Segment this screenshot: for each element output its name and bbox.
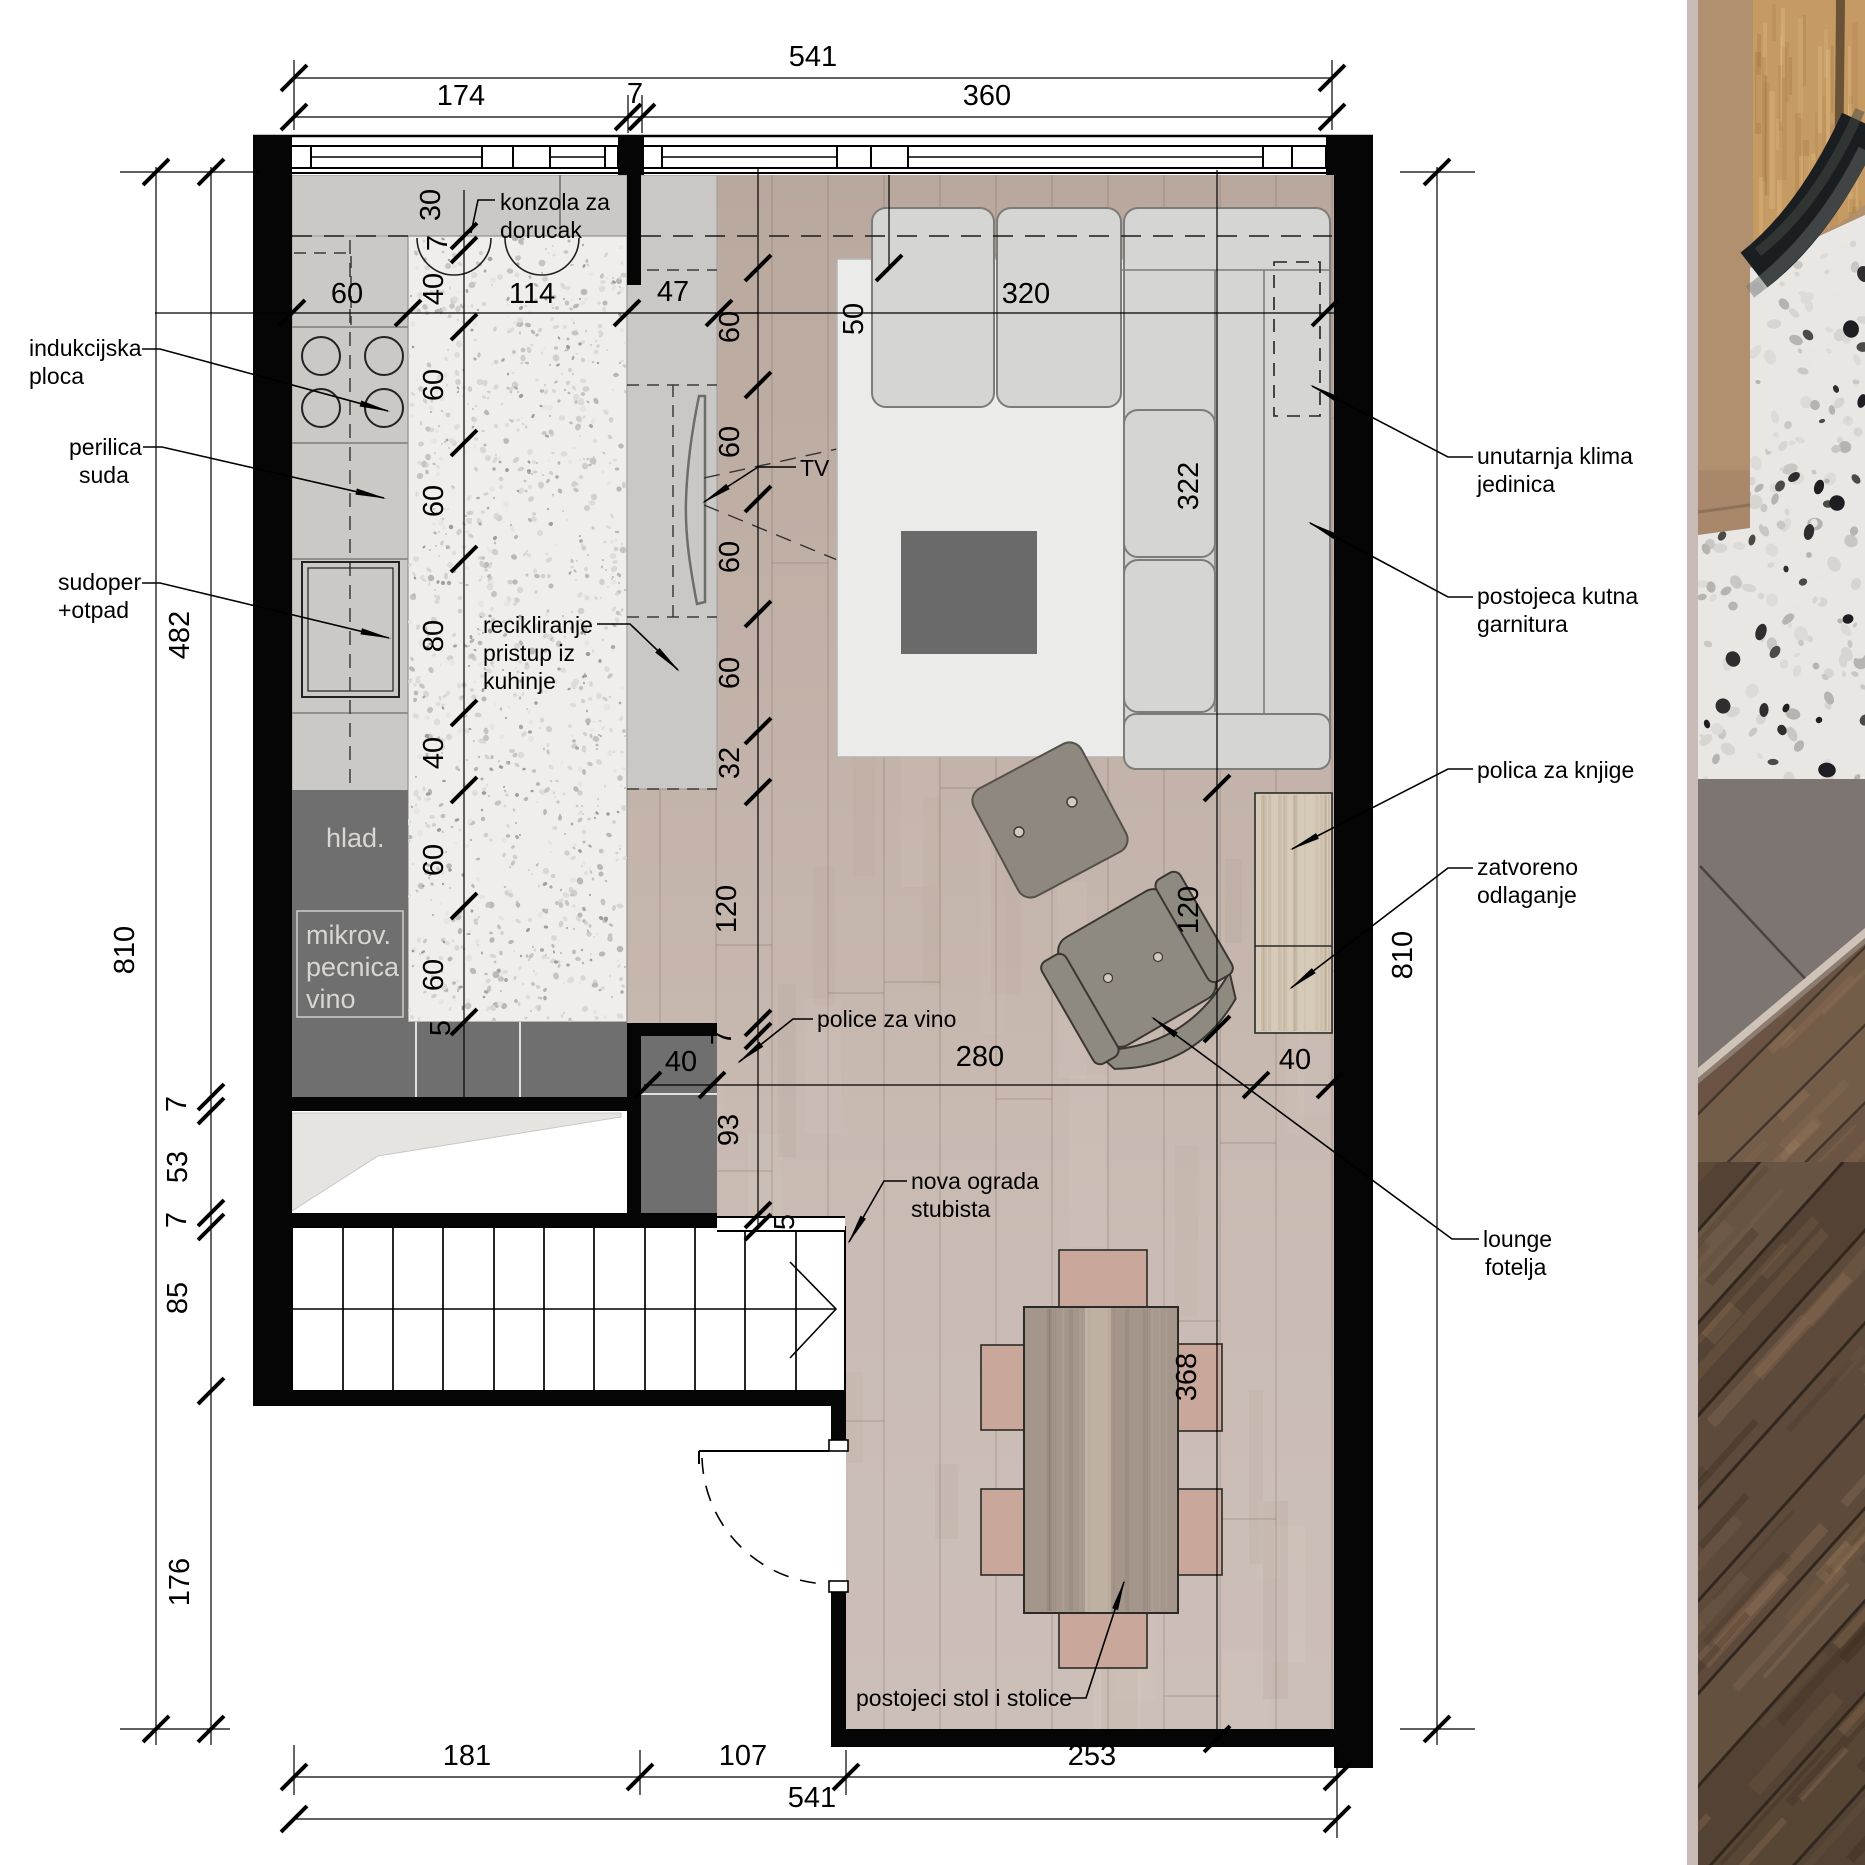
svg-text:810: 810 (109, 926, 141, 974)
svg-text:ploca: ploca (29, 363, 84, 389)
svg-text:810: 810 (1387, 931, 1419, 979)
svg-text:181: 181 (443, 1740, 491, 1772)
svg-text:zatvoreno: zatvoreno (1477, 854, 1578, 880)
svg-text:176: 176 (164, 1558, 196, 1606)
svg-text:30: 30 (415, 189, 447, 221)
svg-text:47: 47 (657, 276, 689, 308)
svg-text:jedinica: jedinica (1476, 471, 1555, 497)
svg-text:114: 114 (509, 278, 555, 310)
svg-text:50: 50 (838, 303, 870, 335)
svg-text:7: 7 (627, 78, 643, 110)
svg-text:32: 32 (714, 747, 746, 779)
svg-text:postojeca kutna: postojeca kutna (1477, 583, 1638, 609)
svg-text:7: 7 (706, 1029, 738, 1045)
svg-text:40: 40 (1279, 1044, 1311, 1076)
svg-text:7: 7 (161, 1096, 193, 1112)
svg-text:60: 60 (714, 657, 746, 689)
svg-text:93: 93 (713, 1114, 745, 1146)
svg-text:nova ograda: nova ograda (911, 1168, 1039, 1194)
svg-text:hlad.: hlad. (326, 823, 385, 853)
svg-text:stubista: stubista (911, 1196, 990, 1222)
svg-text:60: 60 (331, 278, 363, 310)
svg-text:482: 482 (164, 611, 196, 659)
svg-text:120: 120 (1173, 886, 1205, 934)
svg-text:TV: TV (800, 455, 830, 481)
svg-text:5: 5 (769, 1214, 801, 1230)
svg-text:120: 120 (711, 885, 743, 933)
svg-text:60: 60 (714, 311, 746, 343)
svg-text:recikliranje: recikliranje (483, 612, 593, 638)
svg-text:53: 53 (162, 1151, 194, 1183)
svg-text:7: 7 (422, 235, 454, 251)
svg-text:80: 80 (418, 620, 450, 652)
svg-text:vino: vino (306, 984, 356, 1014)
svg-text:60: 60 (418, 959, 450, 991)
svg-text:60: 60 (714, 541, 746, 573)
svg-text:320: 320 (1002, 278, 1050, 310)
svg-text:280: 280 (956, 1041, 1004, 1073)
svg-text:konzola za: konzola za (500, 189, 610, 215)
svg-text:polica za knjige: polica za knjige (1477, 757, 1634, 783)
svg-text:lounge: lounge (1483, 1226, 1552, 1252)
svg-text:5: 5 (425, 1020, 457, 1036)
svg-text:40: 40 (665, 1046, 697, 1078)
svg-text:174: 174 (437, 80, 485, 112)
svg-text:360: 360 (963, 80, 1011, 112)
svg-text:indukcijska: indukcijska (29, 335, 142, 361)
svg-text:+otpad: +otpad (58, 597, 129, 623)
svg-text:mikrov.: mikrov. (306, 920, 391, 950)
svg-text:dorucak: dorucak (500, 217, 582, 243)
svg-text:40: 40 (418, 273, 450, 305)
svg-text:kuhinje: kuhinje (483, 668, 556, 694)
svg-text:7: 7 (161, 1212, 193, 1228)
svg-text:odlaganje: odlaganje (1477, 882, 1577, 908)
svg-text:85: 85 (162, 1282, 194, 1314)
svg-text:60: 60 (418, 485, 450, 517)
svg-text:pecnica: pecnica (306, 952, 400, 982)
svg-text:pristup iz: pristup iz (483, 640, 575, 666)
svg-text:perilica: perilica (69, 434, 142, 460)
svg-text:541: 541 (789, 41, 837, 73)
svg-text:police za vino: police za vino (817, 1006, 956, 1032)
svg-text:253: 253 (1068, 1740, 1116, 1772)
svg-text:368: 368 (1171, 1353, 1203, 1401)
svg-text:60: 60 (418, 844, 450, 876)
svg-text:322: 322 (1173, 462, 1205, 510)
svg-text:541: 541 (788, 1782, 836, 1814)
svg-text:postojeci stol i stolice: postojeci stol i stolice (856, 1685, 1072, 1711)
svg-text:60: 60 (714, 426, 746, 458)
svg-text:fotelja: fotelja (1485, 1254, 1547, 1280)
svg-text:suda: suda (79, 462, 129, 488)
svg-text:sudoper: sudoper (58, 569, 141, 595)
svg-text:garnitura: garnitura (1477, 611, 1568, 637)
svg-text:60: 60 (418, 369, 450, 401)
svg-text:107: 107 (719, 1740, 767, 1772)
svg-text:unutarnja klima: unutarnja klima (1477, 443, 1633, 469)
svg-text:40: 40 (418, 737, 450, 769)
